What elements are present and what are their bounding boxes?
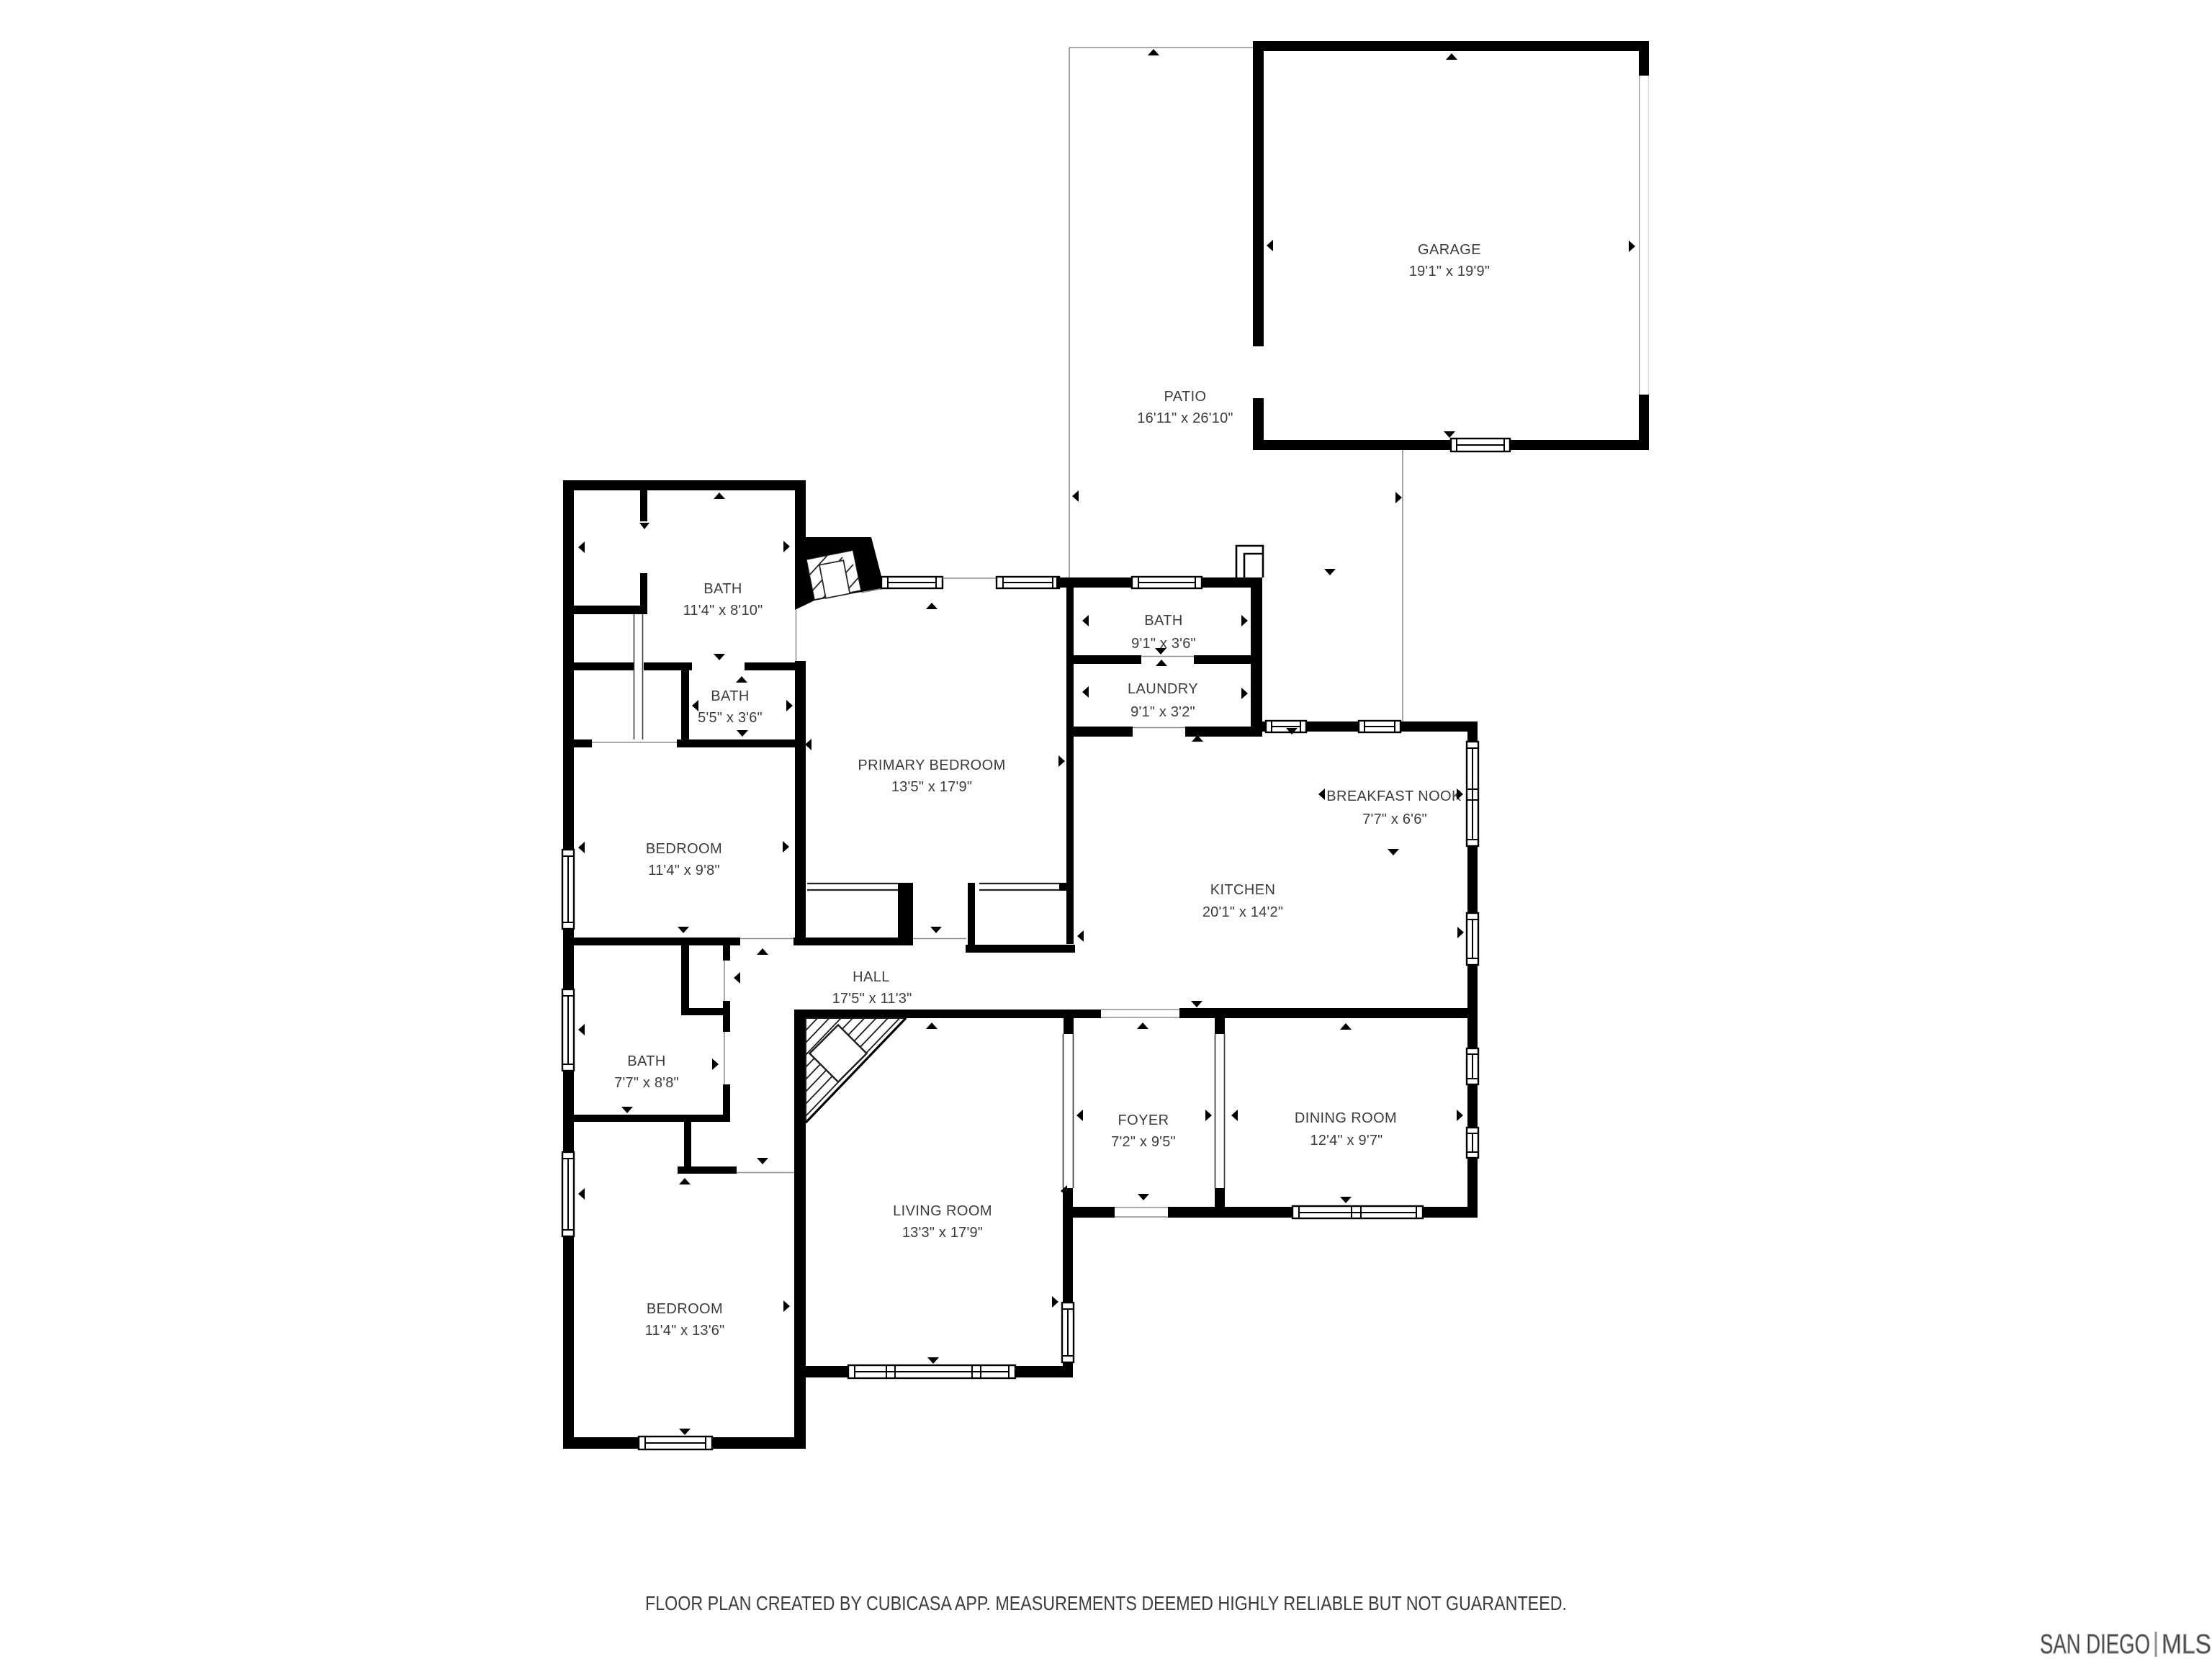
svg-text:13'5" x 17'9": 13'5" x 17'9" bbox=[891, 779, 972, 795]
svg-text:13'3" x 17'9": 13'3" x 17'9" bbox=[902, 1225, 983, 1241]
svg-text:FOYER: FOYER bbox=[1118, 1112, 1169, 1128]
svg-text:7'7" x 8'8": 7'7" x 8'8" bbox=[614, 1075, 679, 1091]
svg-text:GARAGE: GARAGE bbox=[1418, 242, 1481, 258]
svg-text:20'1" x 14'2": 20'1" x 14'2" bbox=[1202, 904, 1283, 920]
svg-text:MLS: MLS bbox=[2162, 1629, 2211, 1659]
svg-text:BATH: BATH bbox=[1144, 613, 1182, 629]
svg-text:SAN DIEGO: SAN DIEGO bbox=[2040, 1629, 2150, 1659]
svg-text:16'11" x 26'10": 16'11" x 26'10" bbox=[1137, 410, 1233, 426]
svg-text:11'4" x 13'6": 11'4" x 13'6" bbox=[645, 1323, 725, 1339]
svg-text:7'7" x 6'6": 7'7" x 6'6" bbox=[1362, 811, 1427, 827]
svg-text:17'5" x 11'3": 17'5" x 11'3" bbox=[832, 991, 912, 1007]
svg-text:9'1" x 3'2": 9'1" x 3'2" bbox=[1130, 704, 1195, 720]
svg-text:LIVING ROOM: LIVING ROOM bbox=[893, 1203, 992, 1219]
svg-text:11'4" x 9'8": 11'4" x 9'8" bbox=[648, 863, 719, 878]
svg-text:5'5" x 3'6": 5'5" x 3'6" bbox=[698, 710, 763, 726]
svg-text:PRIMARY BEDROOM: PRIMARY BEDROOM bbox=[858, 757, 1005, 773]
svg-text:PATIO: PATIO bbox=[1164, 389, 1206, 405]
svg-text:DINING ROOM: DINING ROOM bbox=[1295, 1110, 1397, 1126]
svg-text:LAUNDRY: LAUNDRY bbox=[1128, 681, 1198, 697]
svg-text:BREAKFAST NOOK: BREAKFAST NOOK bbox=[1326, 788, 1462, 804]
svg-text:19'1" x 19'9": 19'1" x 19'9" bbox=[1409, 264, 1490, 279]
svg-text:BEDROOM: BEDROOM bbox=[647, 1301, 723, 1317]
svg-text:12'4" x 9'7": 12'4" x 9'7" bbox=[1310, 1133, 1383, 1148]
svg-text:FLOOR PLAN CREATED BY CUBICASA: FLOOR PLAN CREATED BY CUBICASA APP. MEAS… bbox=[645, 1592, 1567, 1614]
svg-text:BEDROOM: BEDROOM bbox=[646, 841, 722, 857]
svg-text:KITCHEN: KITCHEN bbox=[1210, 882, 1276, 898]
svg-text:BATH: BATH bbox=[627, 1053, 665, 1069]
svg-text:HALL: HALL bbox=[853, 969, 890, 985]
svg-text:BATH: BATH bbox=[703, 581, 742, 597]
svg-text:7'2" x 9'5": 7'2" x 9'5" bbox=[1111, 1134, 1176, 1150]
svg-text:11'4" x 8'10": 11'4" x 8'10" bbox=[683, 603, 763, 619]
svg-text:BATH: BATH bbox=[711, 688, 749, 704]
